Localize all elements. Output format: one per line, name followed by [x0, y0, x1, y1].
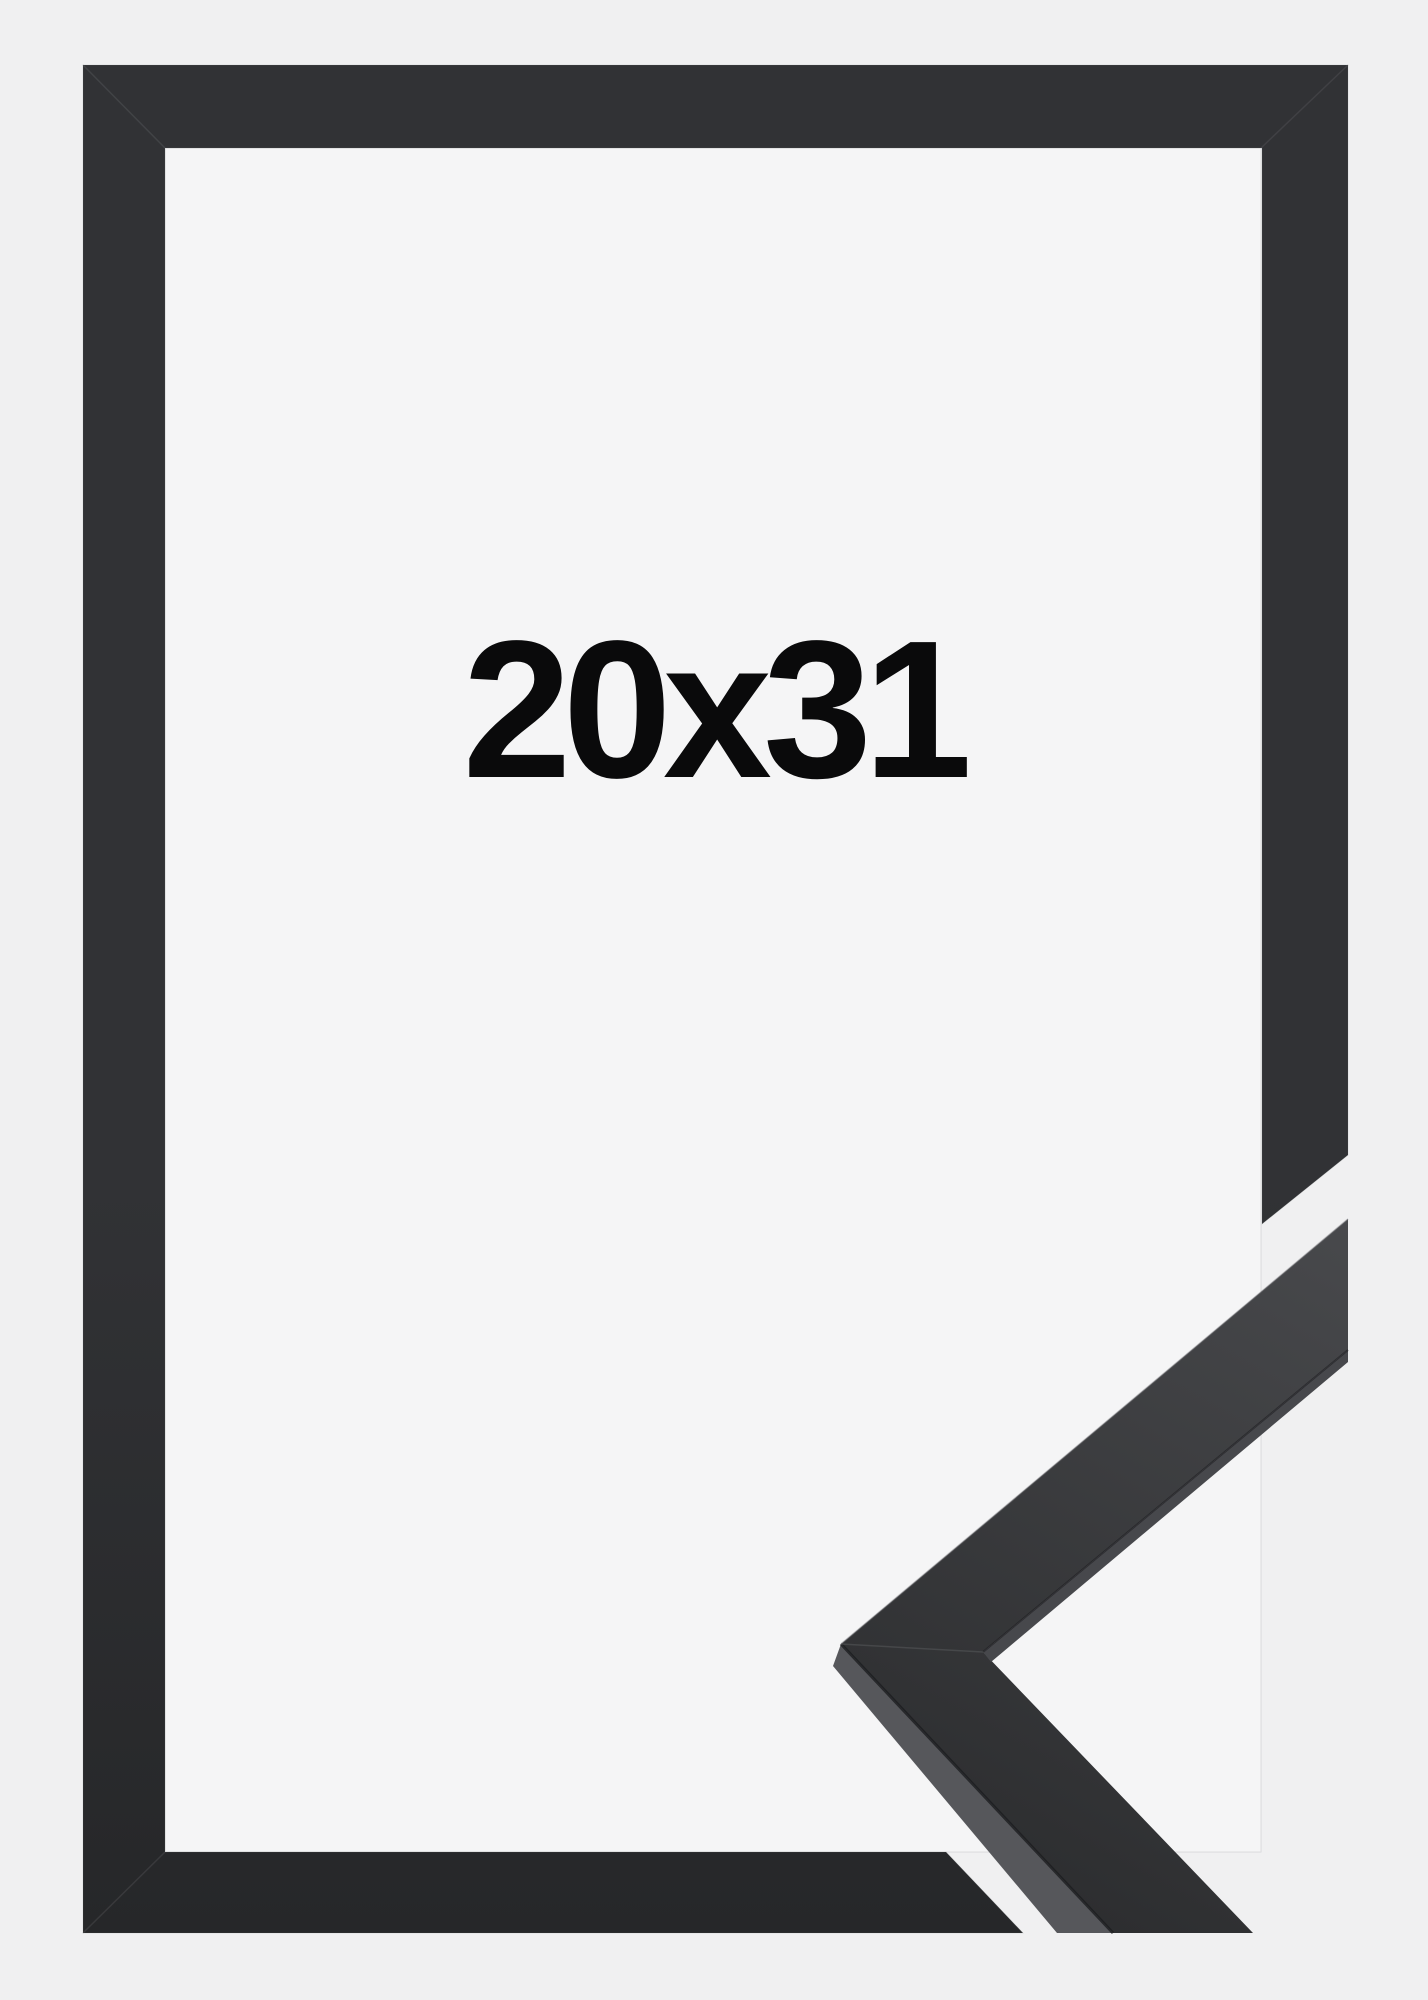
- product-photo: 20x31: [0, 0, 1428, 2000]
- size-label: 20x31: [165, 612, 1261, 808]
- frame-interior: [165, 148, 1261, 1852]
- frame-illustration: [0, 0, 1428, 2000]
